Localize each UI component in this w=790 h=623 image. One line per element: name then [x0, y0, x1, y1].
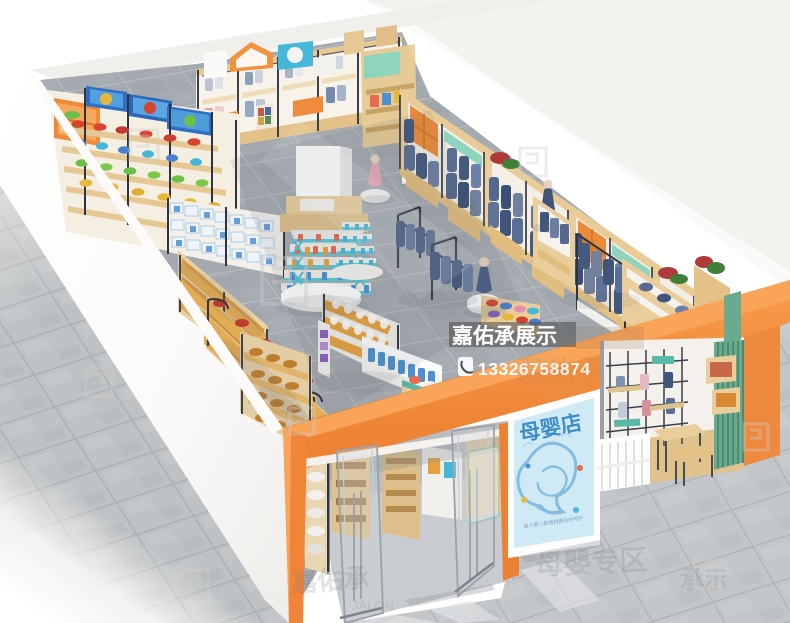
svg-text:嘉佑承展示: 嘉佑承展示 — [452, 324, 557, 348]
svg-text:嘉佑承: 嘉佑承 — [290, 563, 370, 598]
svg-text:JALON: JALON — [540, 384, 582, 399]
svg-text:母嬰专区: 母嬰专区 — [535, 544, 648, 581]
svg-text:JALON: JALON — [352, 598, 394, 613]
